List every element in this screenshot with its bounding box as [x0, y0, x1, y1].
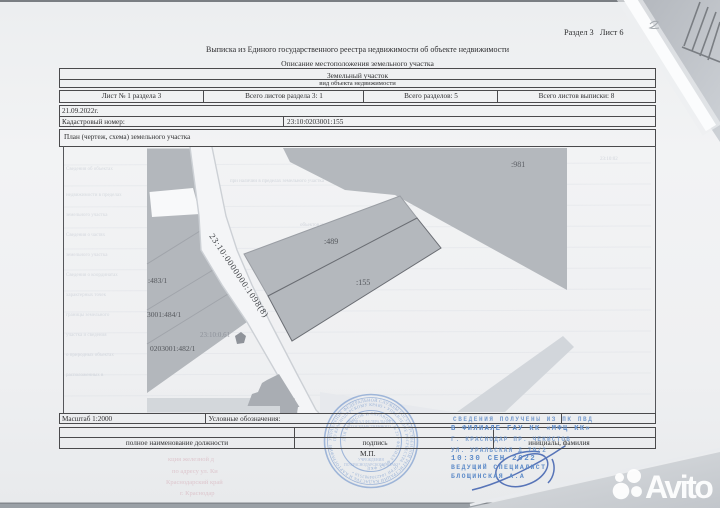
svg-text:Avito: Avito	[645, 469, 713, 505]
svg-text:кция железной д: кция железной д	[168, 456, 215, 463]
svg-text:г. Краснодар: г. Краснодар	[180, 490, 215, 497]
svg-text:по адресу ул. Ки: по адресу ул. Ки	[172, 468, 218, 475]
svg-text:ПО КРАСНОДАРСКОМУ КРАЮ: ПО КРАСНОДАРСКОМУ КРАЮ	[344, 463, 398, 467]
svg-text:УЧРЕЖДЕНИЯ: УЧРЕЖДЕНИЯ	[358, 458, 384, 462]
svg-text:Краснодарский край: Краснодарский край	[166, 479, 223, 486]
